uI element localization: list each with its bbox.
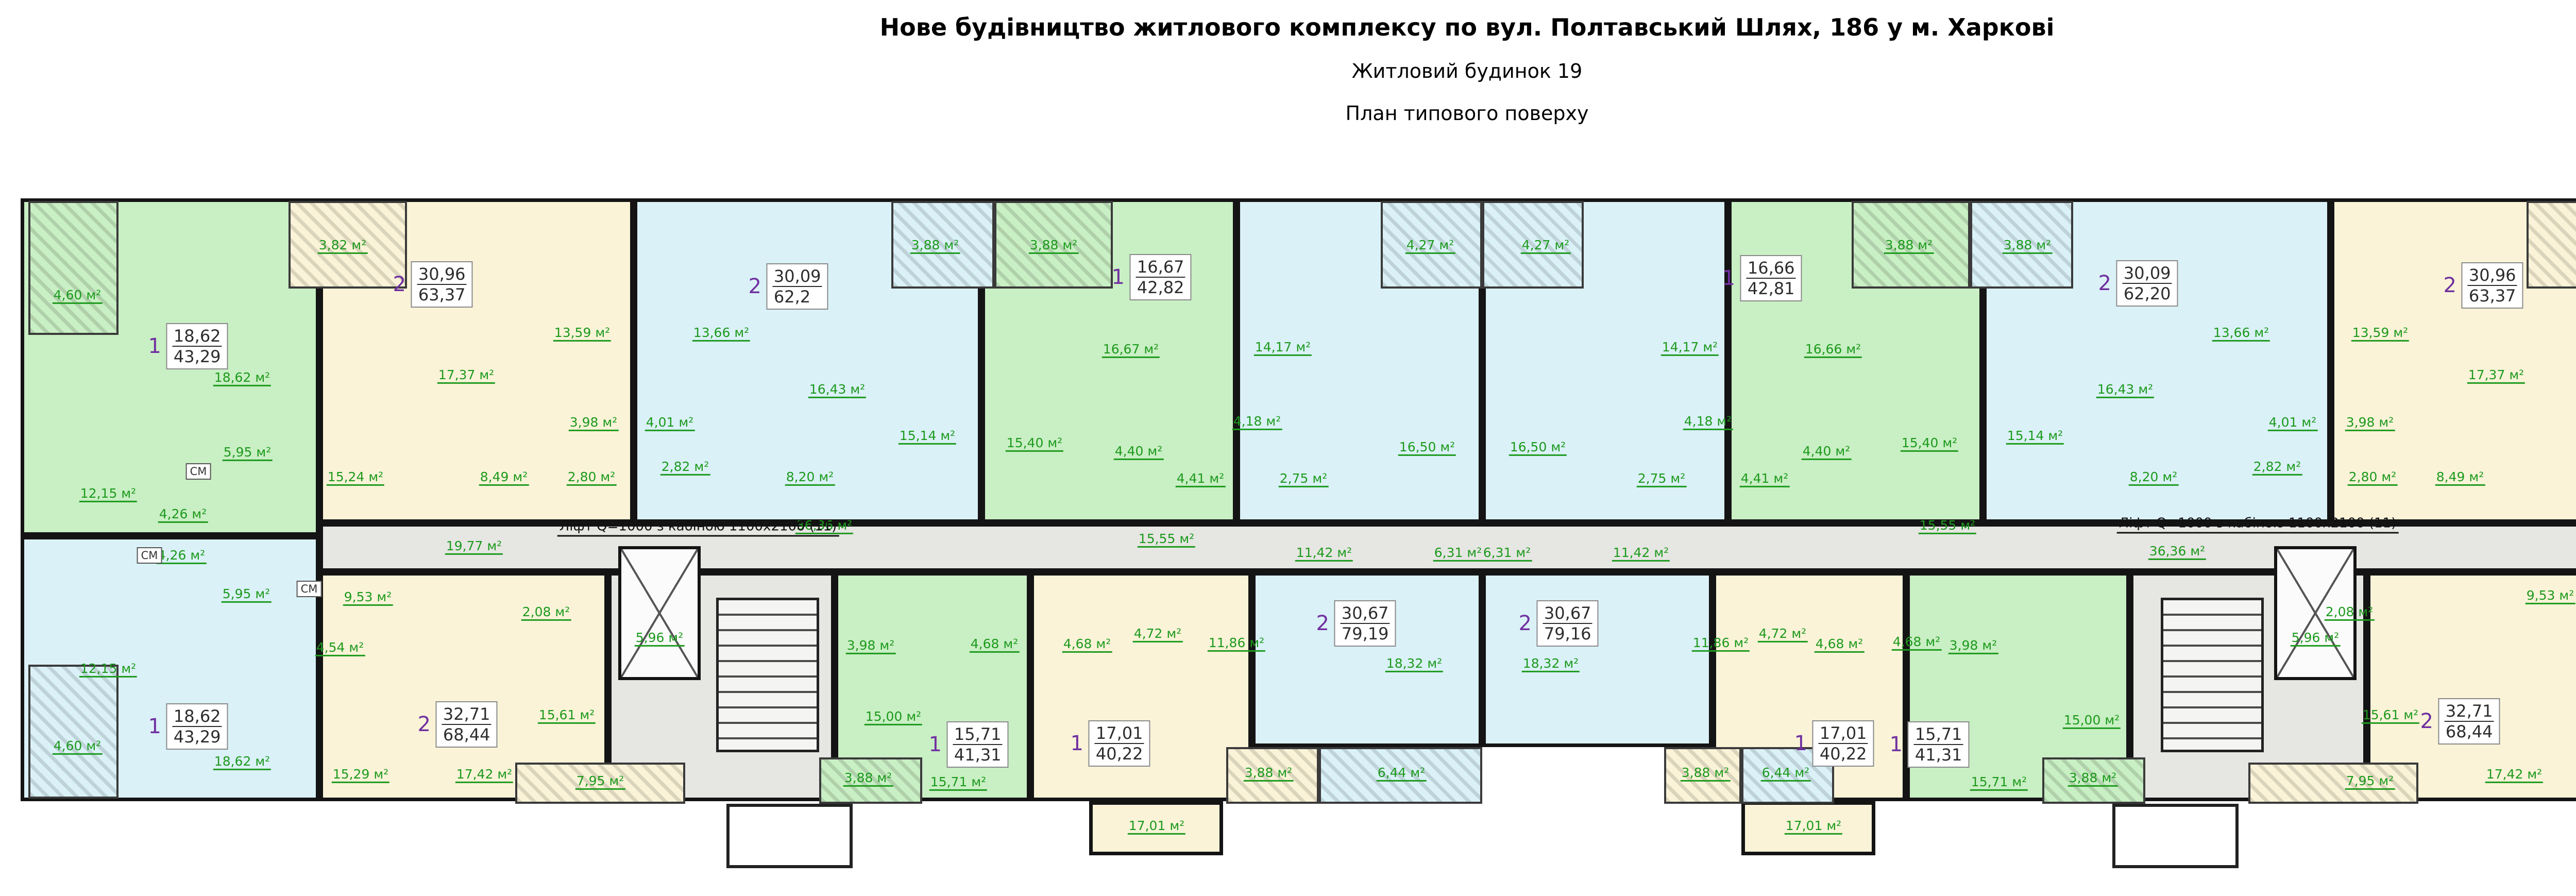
- apartment-room-count: 2: [2098, 272, 2111, 295]
- apartment-unit-label: 118,6243,29: [148, 703, 228, 750]
- room-area-label: 12,15 м²: [79, 662, 137, 678]
- total-area-value: 43,29: [173, 347, 222, 366]
- room-area-label: 8,49 м²: [479, 470, 529, 486]
- room-area-label: 5,95 м²: [222, 587, 272, 603]
- apartment-area-box: 30,6779,16: [1537, 600, 1599, 647]
- total-area-value: 79,19: [1341, 624, 1390, 644]
- apartment-room-count: 2: [1518, 612, 1531, 635]
- apartment-room-count: 1: [1889, 733, 1902, 756]
- room-area-label: 16,43 м²: [2096, 383, 2154, 398]
- room-area-label: 15,40 м²: [1901, 436, 1958, 452]
- room-area-label: 15,00 м²: [865, 710, 922, 725]
- apartment: [1030, 572, 1252, 801]
- room-area-label: 6,31 м²: [1482, 546, 1532, 562]
- living-area-value: 16,66: [1747, 258, 1796, 279]
- total-area-value: 79,16: [1543, 624, 1592, 644]
- room-area-label: 4,18 м²: [1232, 415, 1282, 430]
- total-area-value: 42,81: [1747, 279, 1796, 298]
- total-area-value: 40,22: [1095, 744, 1144, 764]
- apartment-area-box: 15,7141,31: [947, 721, 1009, 768]
- room-area-label: 15,61 м²: [538, 708, 596, 724]
- room-area-label: 11,42 м²: [1612, 546, 1670, 562]
- apartment-area-box: 18,6243,29: [166, 703, 228, 750]
- living-area-value: 30,67: [1341, 603, 1390, 624]
- room-area-label: 4,41 м²: [1740, 472, 1790, 487]
- room-area-label: 17,37 м²: [2467, 368, 2525, 384]
- room-area-label: 4,54 м²: [315, 641, 365, 656]
- room-area-label: 19,77 м²: [445, 539, 503, 555]
- room-area-label: 11,86 м²: [1208, 636, 1265, 652]
- room-area-label: 2,80 м²: [567, 470, 617, 486]
- room-area-label: 4,01 м²: [2268, 416, 2318, 431]
- room-area-label: 13,59 м²: [2351, 326, 2409, 342]
- entrance-porch: [726, 804, 853, 868]
- living-area-value: 18,62: [173, 706, 222, 727]
- apartment-unit-label: 116,6742,82: [1111, 254, 1191, 300]
- floor-plan-page: Нове будівництво житлового комплексу по …: [0, 0, 2576, 896]
- apartment-area-box: 32,7168,44: [2438, 698, 2500, 745]
- room-area-label: 8,49 м²: [2435, 470, 2485, 486]
- room-area-label: 3,88 м²: [1681, 766, 1731, 782]
- living-area-value: 32,71: [442, 704, 492, 725]
- room-area-label: 3,82 м²: [318, 239, 368, 254]
- total-area-value: 62,2: [773, 287, 822, 307]
- living-area-value: 30,09: [2123, 263, 2172, 284]
- room-area-label: 4,72 м²: [1758, 627, 1808, 643]
- room-area-label: 4,40 м²: [1802, 445, 1852, 460]
- room-area-label: 18,32 м²: [1522, 657, 1580, 672]
- lift-spec-label: Ліфт Q=1000 з кабіною 1100х2100 (11): [2117, 516, 2399, 534]
- apartment-unit-label: 232,7168,44: [2420, 698, 2500, 745]
- room-area-label: 13,66 м²: [2212, 326, 2270, 342]
- apartment-room-count: 2: [1316, 612, 1329, 635]
- room-area-label: 15,00 м²: [2063, 714, 2121, 729]
- living-area-value: 32,71: [2445, 701, 2494, 722]
- apartment-unit-label: 118,6243,29: [148, 323, 228, 369]
- room-area-label: 2,75 м²: [1279, 472, 1329, 487]
- room-area-label: 2,80 м²: [2348, 470, 2398, 486]
- staircase: [2161, 598, 2264, 752]
- total-area-value: 43,29: [173, 727, 222, 747]
- room-area-label: 4,68 м²: [1892, 635, 1942, 651]
- building-subtitle: Житловий будинок 19: [0, 60, 2576, 82]
- room-area-label: 5,95 м²: [223, 446, 273, 461]
- apartment-unit-label: 230,9663,37: [2443, 262, 2523, 309]
- room-area-label: 16,50 м²: [1398, 441, 1456, 456]
- living-area-value: 30,67: [1543, 603, 1592, 624]
- apartment-area-box: 32,7168,44: [436, 701, 498, 748]
- living-area-value: 30,09: [773, 266, 822, 287]
- lift-shaft: [618, 546, 701, 680]
- total-area-value: 63,37: [417, 285, 467, 305]
- room-area-label: 16,67 м²: [1102, 343, 1160, 358]
- apartment-room-count: 2: [393, 273, 405, 296]
- apartment-unit-label: 230,6779,19: [1316, 600, 1396, 647]
- apartment: [1482, 572, 1713, 747]
- apartment-unit-label: 116,6642,81: [1722, 255, 1802, 301]
- room-area-label: 8,20 м²: [785, 470, 835, 486]
- room-area-label: 18,32 м²: [1385, 657, 1443, 672]
- room-area-label: 5,96 м²: [2291, 631, 2341, 647]
- room-area-label: 2,08 м²: [521, 605, 571, 621]
- room-area-label: 3,88 м²: [1029, 239, 1079, 254]
- room-area-label: 16,66 м²: [1804, 343, 1862, 358]
- apartment-room-count: 1: [1794, 732, 1807, 755]
- room-area-label: 4,68 м²: [970, 637, 1020, 653]
- apartment-room-count: 1: [1111, 265, 1124, 289]
- room-area-label: 3,88 м²: [1884, 239, 1934, 254]
- closet-label: СМ: [137, 547, 162, 564]
- apartment-unit-label: 117,0140,22: [1794, 720, 1874, 767]
- room-area-label: 2,75 м²: [1637, 472, 1687, 487]
- room-area-label: 4,60 м²: [53, 289, 103, 304]
- room-area-label: 6,44 м²: [1377, 766, 1427, 782]
- room-area-label: 3,88 м²: [2003, 239, 2053, 254]
- total-area-value: 40,22: [1819, 744, 1868, 764]
- living-area-value: 15,71: [1914, 724, 1963, 745]
- lift-spec-label: Ліфт Q=1000 з кабіною 1100х2100 (11): [557, 519, 839, 537]
- total-area-value: 68,44: [442, 725, 492, 745]
- living-area-value: 18,62: [173, 326, 222, 347]
- apartment-unit-label: 117,0140,22: [1070, 720, 1150, 767]
- room-area-label: 15,29 м²: [332, 768, 389, 783]
- apartment-unit-label: 115,7141,31: [928, 721, 1008, 768]
- living-area-value: 15,71: [953, 724, 1003, 745]
- apartment-area-box: 16,6642,81: [1740, 255, 1802, 301]
- living-area-value: 17,01: [1095, 723, 1144, 744]
- apartment-room-count: 1: [928, 733, 941, 756]
- balcony: [28, 201, 118, 335]
- room-area-label: 15,55 м²: [1138, 532, 1195, 548]
- apartment-unit-label: 230,0962,2: [748, 263, 828, 310]
- closet-label: СМ: [297, 581, 322, 597]
- apartment-room-count: 1: [1722, 266, 1735, 290]
- apartment-area-box: 30,9663,37: [411, 261, 473, 308]
- room-area-label: 4,60 м²: [53, 739, 103, 755]
- room-area-label: 17,01 м²: [1785, 819, 1842, 835]
- room-area-label: 4,27 м²: [1521, 239, 1571, 254]
- total-area-value: 63,37: [2468, 286, 2517, 306]
- room-area-label: 15,14 м²: [899, 429, 956, 445]
- entrance-porch: [2112, 804, 2239, 868]
- closet-label: СМ: [186, 463, 211, 480]
- apartment-area-box: 30,0962,20: [2116, 260, 2178, 307]
- room-area-label: 3,88 м²: [843, 771, 893, 787]
- apartment-unit-label: 230,0962,20: [2098, 260, 2178, 307]
- balcony: [28, 665, 118, 799]
- room-area-label: 15,71 м²: [1970, 775, 2028, 791]
- total-area-value: 42,82: [1136, 278, 1185, 297]
- room-area-label: 17,37 м²: [437, 368, 495, 384]
- apartment-room-count: 2: [2420, 709, 2433, 733]
- room-area-label: 15,55 м²: [1919, 519, 1976, 534]
- balcony: [2527, 201, 2576, 289]
- room-area-label: 4,68 м²: [1815, 637, 1865, 653]
- room-area-label: 3,88 м²: [2068, 771, 2118, 787]
- room-area-label: 3,98 м²: [569, 416, 619, 431]
- room-area-label: 9,53 м²: [2526, 589, 2575, 604]
- living-area-value: 30,96: [2468, 265, 2517, 286]
- room-area-label: 15,24 м²: [327, 470, 384, 486]
- living-area-value: 30,96: [417, 264, 467, 285]
- apartment-unit-label: 232,7168,44: [417, 701, 497, 748]
- room-area-label: 15,61 м²: [2362, 708, 2419, 724]
- room-area-label: 15,71 м²: [929, 775, 987, 791]
- apartment-room-count: 1: [148, 715, 161, 738]
- plan-subtitle: План типового поверху: [0, 102, 2576, 125]
- room-area-label: 18,62 м²: [213, 371, 271, 386]
- room-area-label: 16,50 м²: [1509, 441, 1567, 456]
- room-area-label: 6,44 м²: [1761, 766, 1811, 782]
- apartment-area-box: 30,0962,2: [767, 263, 828, 310]
- room-area-label: 9,53 м²: [343, 590, 393, 606]
- apartment-room-count: 2: [748, 275, 761, 298]
- page-title: Нове будівництво житлового комплексу по …: [0, 15, 2576, 39]
- room-area-label: 3,98 м²: [846, 639, 896, 654]
- room-area-label: 4,72 м²: [1133, 627, 1183, 643]
- apartment-area-box: 18,6243,29: [166, 323, 228, 369]
- room-area-label: 7,95 м²: [2345, 774, 2395, 790]
- total-area-value: 68,44: [2445, 722, 2494, 741]
- living-area-value: 16,67: [1136, 257, 1185, 278]
- apartment-room-count: 1: [148, 334, 161, 358]
- room-area-label: 2,82 м²: [660, 460, 710, 476]
- title-block: Нове будівництво житлового комплексу по …: [0, 15, 2576, 125]
- staircase: [716, 598, 819, 752]
- room-area-label: 17,42 м²: [455, 768, 513, 783]
- room-area-label: 3,88 м²: [910, 239, 960, 254]
- room-area-label: 11,86 м²: [1692, 636, 1750, 652]
- apartment-unit-label: 115,7141,31: [1889, 721, 1969, 768]
- room-area-label: 3,88 м²: [1244, 766, 1294, 782]
- room-area-label: 13,66 м²: [692, 326, 750, 342]
- room-area-label: 17,01 м²: [1128, 819, 1185, 835]
- apartment-area-box: 15,7141,31: [1908, 721, 1970, 768]
- room-area-label: 5,96 м²: [635, 631, 685, 647]
- room-area-label: 4,40 м²: [1114, 445, 1164, 460]
- room-area-label: 36,36 м²: [2148, 545, 2206, 560]
- apartment-room-count: 2: [2443, 274, 2456, 297]
- room-area-label: 8,20 м²: [2129, 470, 2179, 486]
- room-area-label: 6,31 м²: [1433, 546, 1483, 562]
- apartment-unit-label: 230,9663,37: [393, 261, 472, 308]
- room-area-label: 16,43 м²: [808, 383, 866, 398]
- room-area-label: 15,40 м²: [1006, 436, 1063, 452]
- apartment-area-box: 17,0140,22: [1812, 720, 1874, 767]
- apartment: [1252, 572, 1482, 747]
- apartment-unit-label: 230,6779,16: [1518, 600, 1598, 647]
- room-area-label: 11,42 м²: [1295, 546, 1353, 562]
- room-area-label: 15,14 м²: [2006, 429, 2064, 445]
- total-area-value: 62,20: [2123, 284, 2172, 303]
- room-area-label: 2,82 м²: [2252, 460, 2302, 476]
- apartment-room-count: 1: [1070, 732, 1083, 755]
- room-area-label: 3,98 м²: [2345, 416, 2395, 431]
- living-area-value: 17,01: [1819, 723, 1868, 744]
- apartment-room-count: 2: [417, 713, 430, 736]
- room-area-label: 4,68 м²: [1062, 637, 1112, 653]
- room-area-label: 13,59 м²: [553, 326, 611, 342]
- apartment-area-box: 30,9663,37: [2462, 262, 2523, 309]
- room-area-label: 4,01 м²: [645, 416, 695, 431]
- room-area-label: 14,17 м²: [1661, 341, 1719, 356]
- apartment-area-box: 17,0140,22: [1089, 720, 1150, 767]
- apartment-area-box: 16,6742,82: [1130, 254, 1192, 300]
- room-area-label: 18,62 м²: [213, 755, 271, 770]
- room-area-label: 4,26 м²: [157, 549, 207, 564]
- apartment-area-box: 30,6779,19: [1334, 600, 1396, 647]
- total-area-value: 41,31: [1914, 745, 1963, 765]
- room-area-label: 4,26 м²: [158, 508, 208, 523]
- total-area-value: 41,31: [953, 745, 1003, 765]
- room-area-label: 17,42 м²: [2485, 768, 2543, 783]
- room-area-label: 12,15 м²: [79, 487, 137, 502]
- room-area-label: 7,95 м²: [575, 774, 625, 790]
- room-area-label: 3,98 м²: [1948, 639, 1998, 654]
- room-area-label: 2,08 м²: [2325, 605, 2375, 621]
- room-area-label: 14,17 м²: [1254, 341, 1312, 356]
- room-area-label: 4,27 м²: [1405, 239, 1455, 254]
- room-area-label: 4,18 м²: [1683, 415, 1733, 430]
- room-area-label: 4,41 м²: [1176, 472, 1226, 487]
